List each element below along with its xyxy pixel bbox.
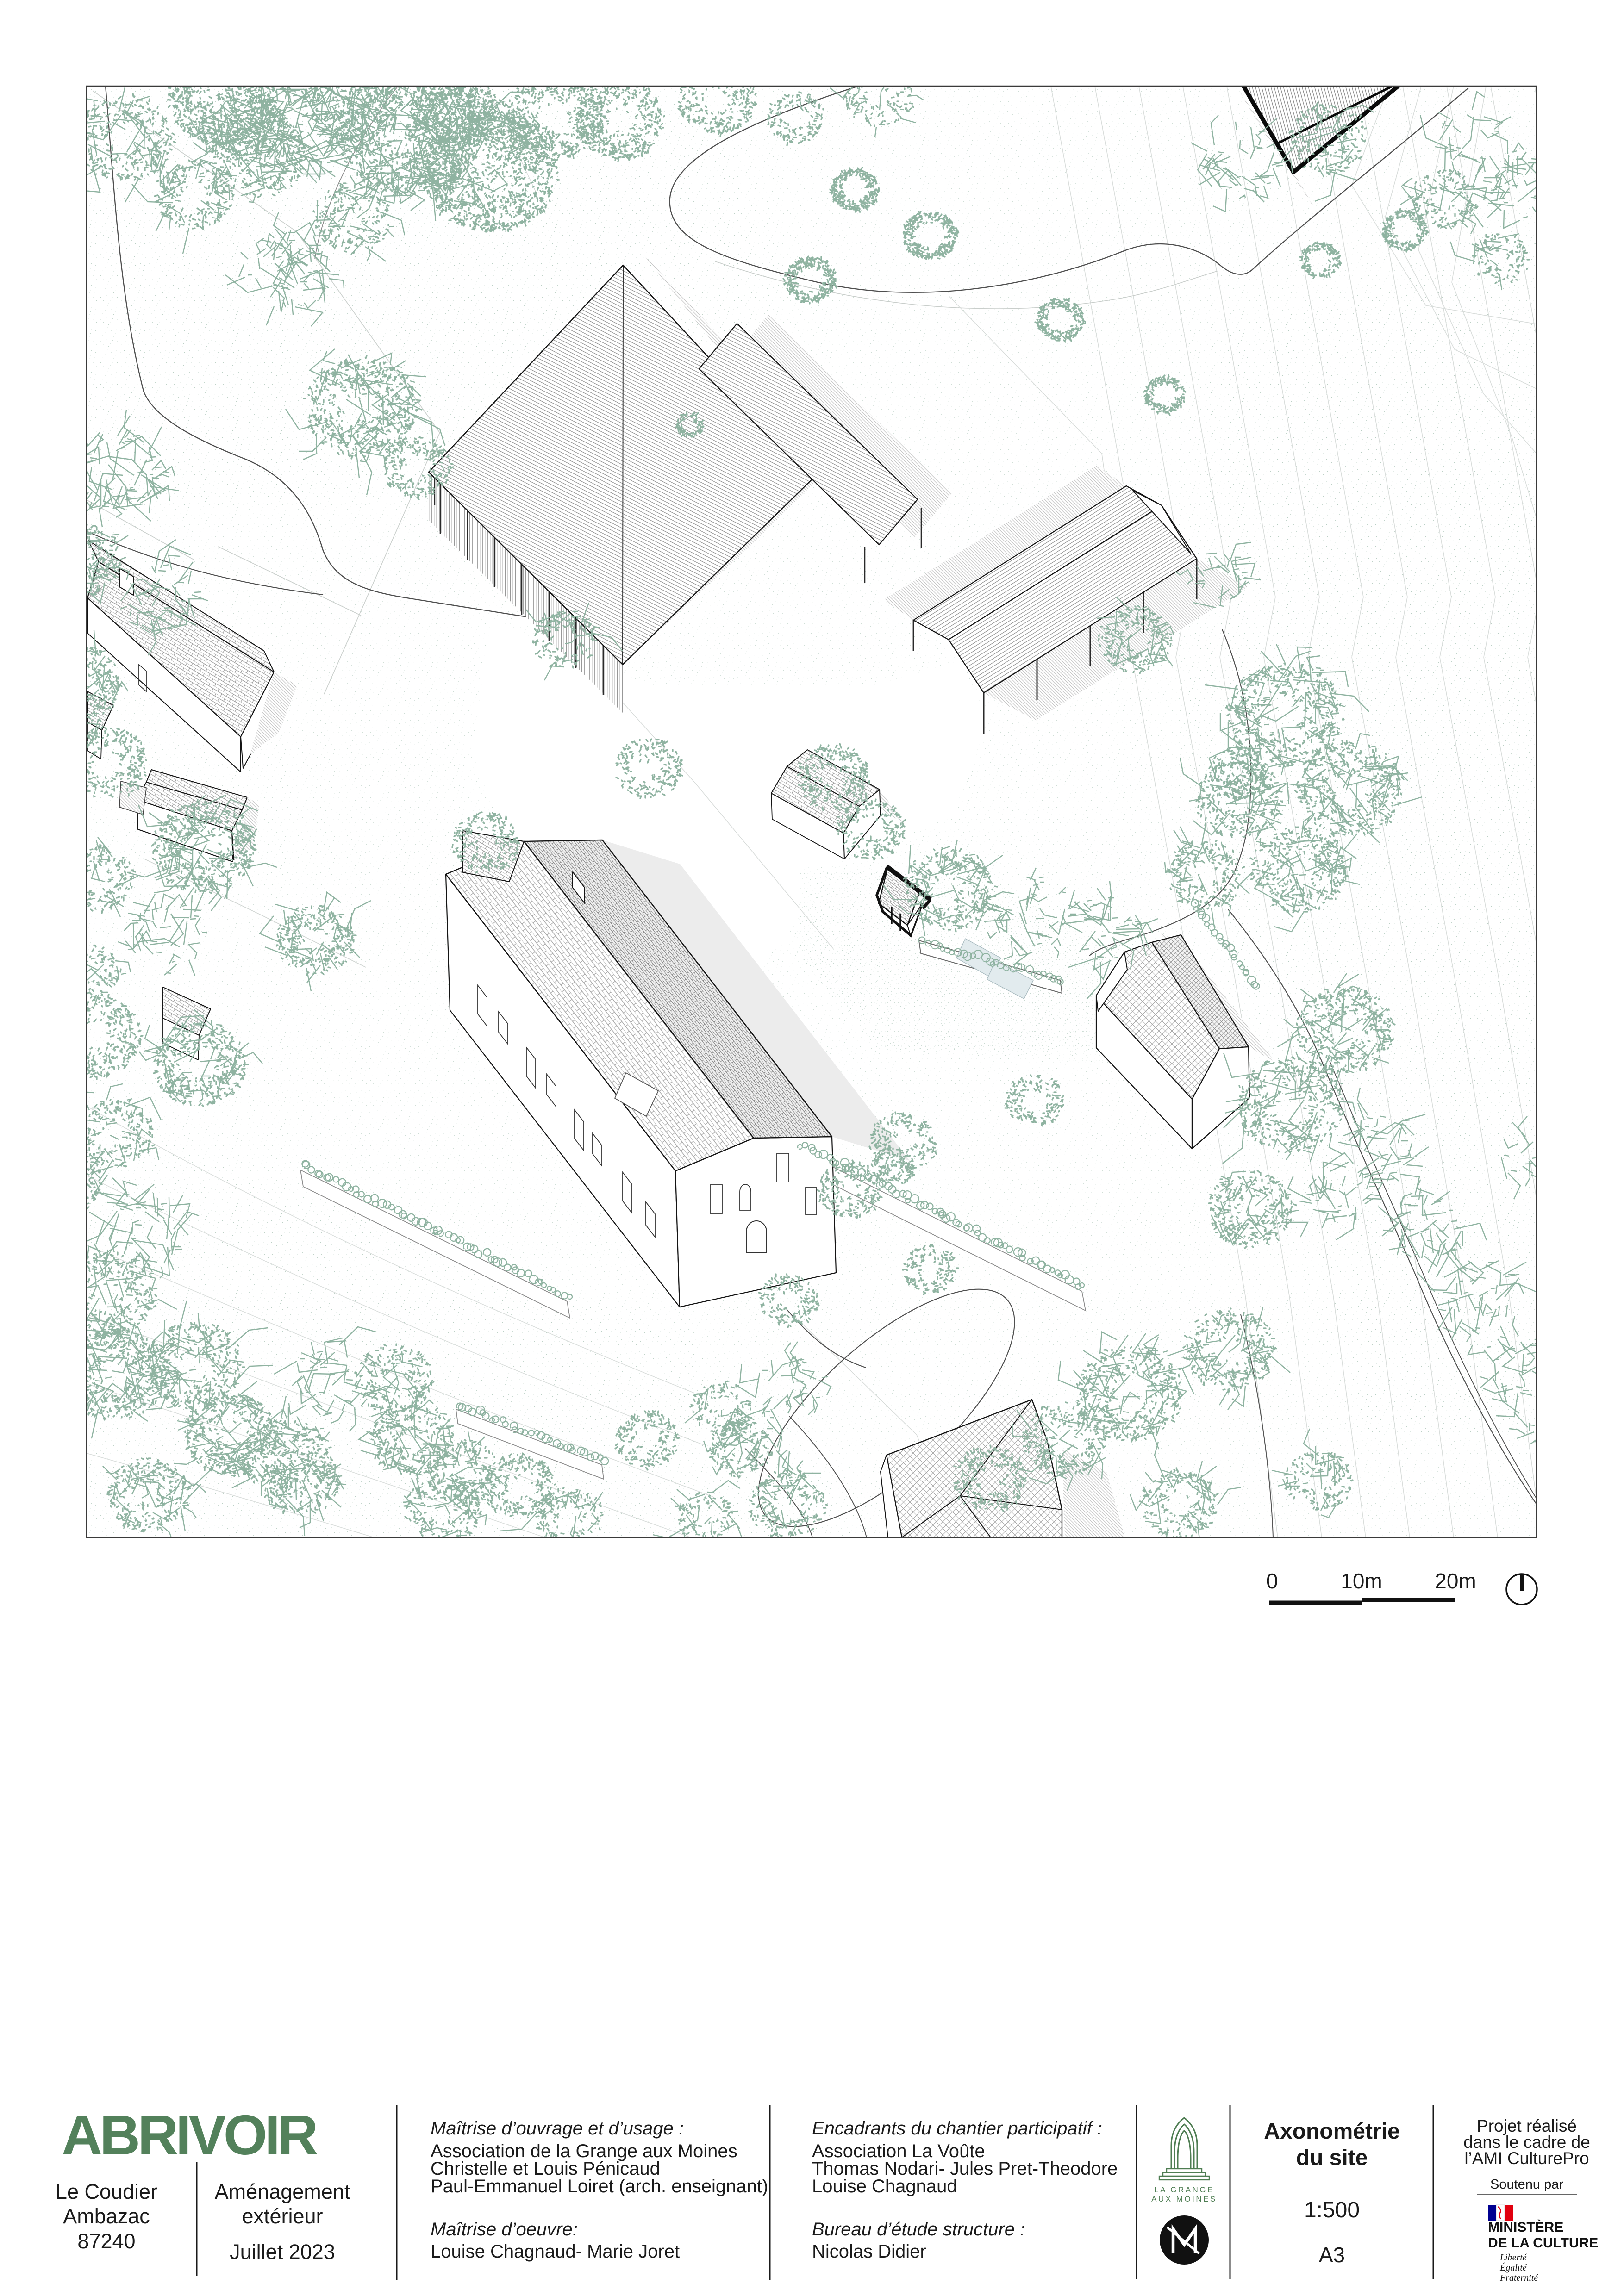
- svg-text:Fraternité: Fraternité: [1499, 2273, 1538, 2283]
- svg-text:Louise Chagnaud- Marie Joret: Louise Chagnaud- Marie Joret: [431, 2241, 680, 2262]
- svg-text:87240: 87240: [77, 2229, 135, 2253]
- svg-text:l’AMI CulturePro: l’AMI CulturePro: [1464, 2149, 1589, 2168]
- svg-text:Bureau d’étude structure :: Bureau d’étude structure :: [812, 2219, 1025, 2240]
- svg-text:1:500: 1:500: [1304, 2198, 1360, 2222]
- svg-text:Aménagement: Aménagement: [215, 2180, 350, 2203]
- svg-text:LA GRANGE: LA GRANGE: [1154, 2185, 1214, 2194]
- svg-text:20m: 20m: [1435, 1569, 1476, 1593]
- svg-text:Le Coudier: Le Coudier: [56, 2180, 157, 2203]
- svg-text:Ambazac: Ambazac: [63, 2204, 150, 2228]
- svg-text:A3: A3: [1319, 2243, 1345, 2267]
- svg-text:du site: du site: [1296, 2146, 1368, 2170]
- svg-text:Nicolas Didier: Nicolas Didier: [812, 2241, 926, 2262]
- svg-text:Encadrants du chantier partici: Encadrants du chantier participatif :: [812, 2118, 1102, 2139]
- svg-text:Maîtrise d’oeuvre:: Maîtrise d’oeuvre:: [431, 2219, 578, 2240]
- svg-text:0: 0: [1266, 1569, 1278, 1593]
- svg-text:Axonométrie: Axonométrie: [1264, 2119, 1399, 2144]
- svg-text:10m: 10m: [1341, 1569, 1382, 1593]
- svg-text:Liberté: Liberté: [1499, 2252, 1527, 2263]
- svg-text:Juillet 2023: Juillet 2023: [230, 2240, 335, 2264]
- svg-text:Maîtrise d’ouvrage et d’usage: Maîtrise d’ouvrage et d’usage :: [431, 2118, 684, 2139]
- svg-text:AUX MOINES: AUX MOINES: [1151, 2195, 1217, 2203]
- svg-text:Égalité: Égalité: [1499, 2262, 1527, 2273]
- svg-text:Soutenu par: Soutenu par: [1490, 2177, 1563, 2192]
- svg-text:Louise Chagnaud: Louise Chagnaud: [812, 2176, 957, 2196]
- svg-text:extérieur: extérieur: [242, 2204, 323, 2228]
- svg-text:ABRIVOIR: ABRIVOIR: [62, 2103, 317, 2166]
- svg-text:Paul-Emmanuel Loiret (arch. en: Paul-Emmanuel Loiret (arch. enseignant): [431, 2176, 768, 2196]
- svg-text:MINISTÈRE: MINISTÈRE: [1488, 2219, 1563, 2235]
- svg-text:DE LA CULTURE: DE LA CULTURE: [1488, 2235, 1598, 2251]
